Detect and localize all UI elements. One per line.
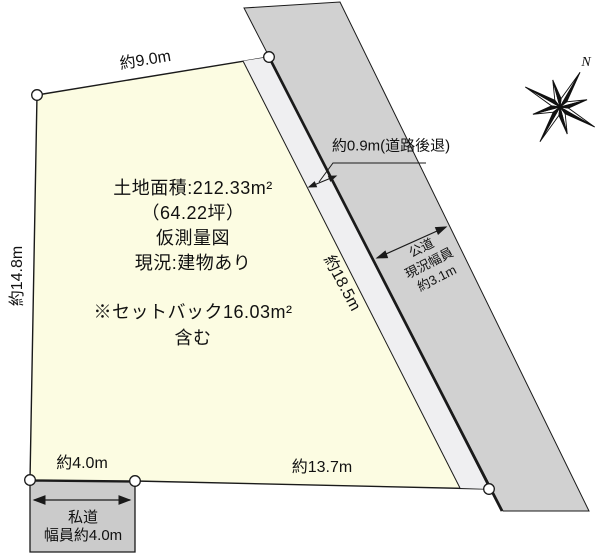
dimension-bottom-left: 約4.0m (56, 449, 108, 473)
private-road-width-value: 幅員約4.0m (44, 527, 122, 545)
north-label: N (581, 55, 590, 71)
survey-point-marker (130, 476, 141, 487)
survey-point-marker (25, 475, 36, 486)
survey-point-marker (484, 484, 495, 495)
map-type-text: 仮測量図 (113, 226, 273, 251)
plot-info-block: 土地面積:212.33m² （64.22坪） 仮測量図 現況:建物あり (113, 176, 273, 276)
setback-note-block: ※セットバック16.03m² 含む (93, 299, 292, 351)
plot-area-tsubo-text: （64.22坪） (113, 201, 273, 226)
plot-area-text: 土地面積:212.33m² (113, 176, 273, 201)
land-survey-map: 土地面積:212.33m² （64.22坪） 仮測量図 現況:建物あり ※セット… (0, 0, 600, 554)
private-road-name: 私道 (44, 509, 122, 527)
current-state-text: 現況:建物あり (113, 251, 273, 276)
dimension-bottom: 約13.7m (292, 453, 352, 477)
dimension-left: 約14.8m (3, 246, 27, 306)
setback-area-text: ※セットバック16.03m² (93, 299, 292, 325)
private-road-label: 私道 幅員約4.0m (44, 509, 122, 545)
survey-point-marker (32, 90, 43, 101)
setback-area-text2: 含む (93, 325, 292, 351)
setback-depth-label: 約0.9m(道路後退) (332, 135, 450, 156)
survey-point-marker (264, 52, 275, 63)
